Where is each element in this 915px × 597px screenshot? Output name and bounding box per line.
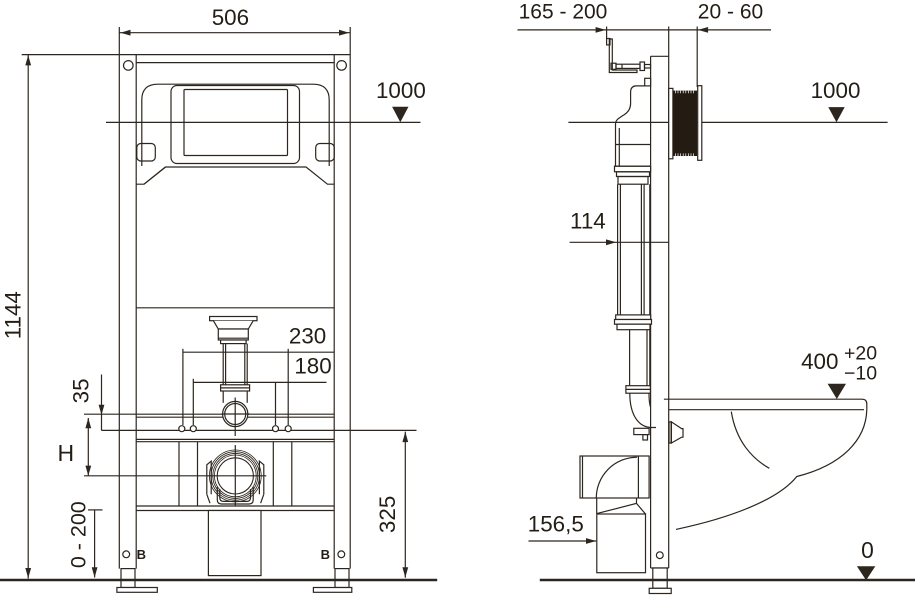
svg-text:180: 180 bbox=[294, 354, 331, 379]
svg-text:1000: 1000 bbox=[376, 78, 426, 103]
svg-text:325: 325 bbox=[375, 496, 400, 533]
svg-text:114: 114 bbox=[570, 209, 606, 234]
svg-text:165 - 200: 165 - 200 bbox=[519, 0, 608, 23]
svg-text:H: H bbox=[58, 440, 75, 466]
svg-text:20 - 60: 20 - 60 bbox=[698, 0, 763, 23]
svg-text:1144: 1144 bbox=[0, 291, 25, 339]
svg-text:−10: −10 bbox=[844, 362, 877, 384]
svg-text:+20: +20 bbox=[844, 343, 877, 365]
svg-text:B: B bbox=[321, 547, 330, 562]
svg-text:0: 0 bbox=[861, 537, 874, 563]
svg-text:230: 230 bbox=[289, 323, 326, 348]
svg-text:400: 400 bbox=[801, 349, 838, 374]
svg-text:506: 506 bbox=[212, 5, 249, 30]
svg-text:B: B bbox=[137, 547, 146, 562]
svg-text:156,5: 156,5 bbox=[528, 511, 584, 536]
svg-text:0 - 200: 0 - 200 bbox=[67, 501, 91, 568]
svg-text:35: 35 bbox=[68, 378, 93, 403]
svg-text:1000: 1000 bbox=[811, 78, 861, 103]
